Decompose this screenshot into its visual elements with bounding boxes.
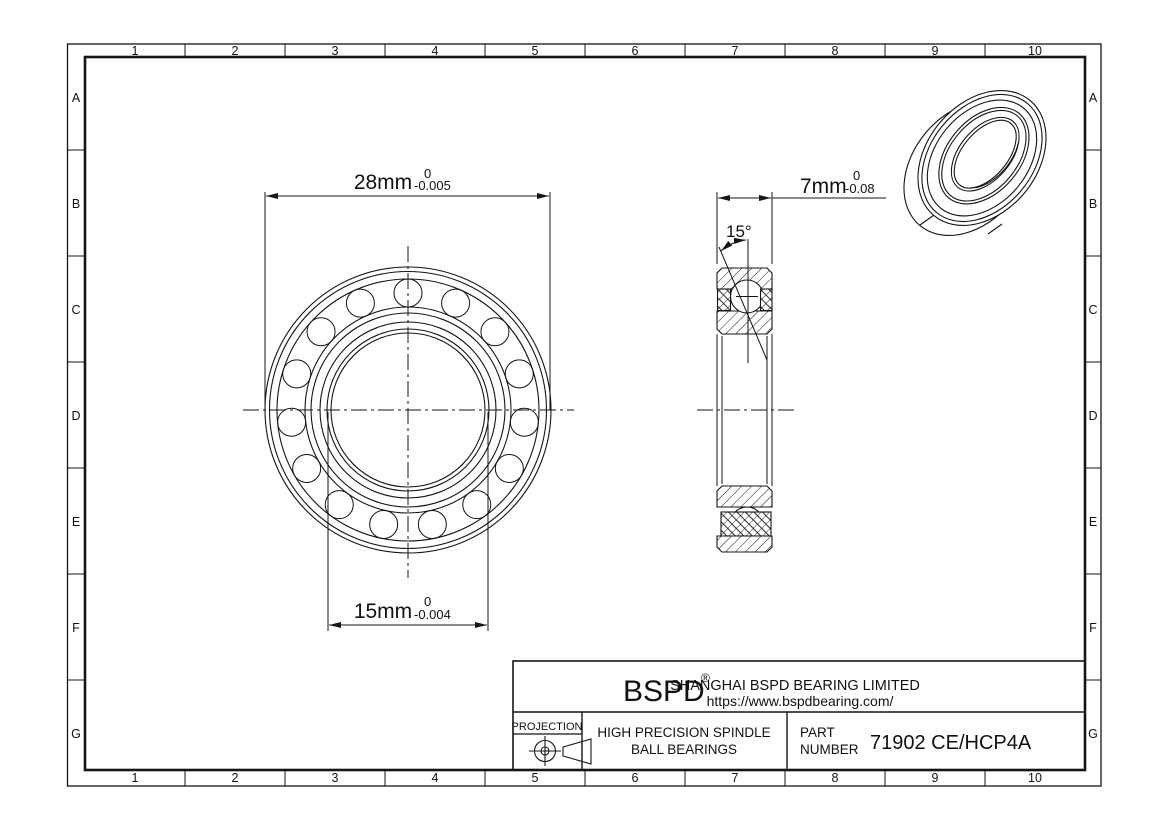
ball-circle — [293, 455, 321, 483]
outer-ring-bottom-section — [717, 536, 772, 552]
grid-row-label: C — [71, 303, 80, 317]
grid-col-label: 6 — [632, 771, 639, 785]
grid-col-label: 10 — [1028, 44, 1042, 58]
product-description-line1: HIGH PRECISION SPINDLE — [597, 725, 770, 740]
grid-row-label: C — [1088, 303, 1097, 317]
od-value: 28mm — [354, 171, 412, 194]
grid-row-label: G — [71, 727, 81, 741]
iso-tangent-line — [920, 215, 934, 225]
grid-col-label: 4 — [432, 44, 439, 58]
grid-col-label: 6 — [632, 44, 639, 58]
grid-col-label: 5 — [532, 44, 539, 58]
grid-row-label: A — [1089, 91, 1098, 105]
bore-value: 15mm — [354, 600, 412, 623]
grid-col-label: 2 — [232, 44, 239, 58]
ball-circle — [418, 510, 446, 538]
inner-ring-bottom-section — [717, 486, 772, 507]
grid-row-label: E — [1089, 515, 1097, 529]
ball-circle — [278, 408, 306, 436]
od-dimension-text: 28mm 0 -0.005 — [354, 166, 451, 194]
title-block-text: BSPD ® SHANGHAI BSPD BEARING LIMITED htt… — [512, 671, 1032, 757]
company-name: SHANGHAI BSPD BEARING LIMITED — [670, 678, 920, 694]
engineering-drawing: 1 2 3 4 5 6 7 8 9 10 1 2 3 4 5 6 7 8 9 1… — [0, 0, 1170, 827]
ball-circle — [346, 289, 374, 317]
grid-row-label: D — [1088, 409, 1097, 423]
isometric-view — [878, 65, 1073, 261]
grid-row-label: F — [72, 621, 80, 635]
ball-circle — [505, 360, 533, 388]
cage-right-section — [761, 289, 773, 311]
od-tol-lower: -0.005 — [414, 178, 451, 193]
grid-col-label: 4 — [432, 771, 439, 785]
grid-row-label: D — [71, 409, 80, 423]
grid-row-label: A — [72, 91, 81, 105]
grid-col-label: 9 — [932, 44, 939, 58]
grid-row-label: B — [72, 197, 80, 211]
front-view — [243, 246, 574, 578]
part-number-value: 71902 CE/HCP4A — [870, 732, 1032, 754]
ball-circle — [283, 360, 311, 388]
drawing-sheet: 1 2 3 4 5 6 7 8 9 10 1 2 3 4 5 6 7 8 9 1… — [0, 0, 1170, 827]
seal-cage-bottom-section — [721, 512, 771, 536]
product-description-line2: BALL BEARINGS — [631, 742, 737, 757]
grid-row-label: F — [1089, 621, 1097, 635]
grid-col-label: 5 — [532, 771, 539, 785]
company-website: https://www.bspdbearing.com/ — [707, 693, 894, 709]
ball-circle — [370, 510, 398, 538]
inner-ring-top-section — [717, 311, 772, 334]
bore-dimension-text: 15mm 0 -0.004 — [354, 594, 451, 623]
grid-col-label: 9 — [932, 771, 939, 785]
grid-col-label: 3 — [332, 771, 339, 785]
width-tol-lower: -0.08 — [845, 181, 875, 196]
ball-circle — [510, 408, 538, 436]
projection-label: PROJECTION — [512, 721, 583, 733]
grid-col-label: 3 — [332, 44, 339, 58]
grid-col-label: 7 — [732, 44, 739, 58]
part-label-line1: PART — [800, 725, 835, 740]
grid-col-label: 10 — [1028, 771, 1042, 785]
grid-row-label: G — [1088, 727, 1098, 741]
grid-col-label: 2 — [232, 771, 239, 785]
part-label-line2: NUMBER — [800, 742, 859, 757]
iso-tangent-line — [988, 224, 1002, 234]
bore-tol-lower: -0.004 — [414, 607, 451, 622]
ball-circle — [442, 289, 470, 317]
angle-arc — [721, 240, 746, 251]
width-value: 7mm — [800, 175, 847, 198]
grid-col-label: 1 — [132, 44, 139, 58]
ball-circle — [495, 455, 523, 483]
grid-col-label: 7 — [732, 771, 739, 785]
grid-col-label: 8 — [832, 44, 839, 58]
width-dimension-text: 7mm 0 -0.08 15° — [726, 168, 875, 241]
grid-row-label: B — [1089, 197, 1097, 211]
cage-left-section — [718, 289, 731, 311]
iso-outer-face-ellipse — [892, 65, 1073, 251]
grid-col-label: 8 — [832, 771, 839, 785]
contact-angle-label: 15° — [726, 222, 752, 241]
grid-col-label: 1 — [132, 771, 139, 785]
grid-row-label: E — [72, 515, 80, 529]
